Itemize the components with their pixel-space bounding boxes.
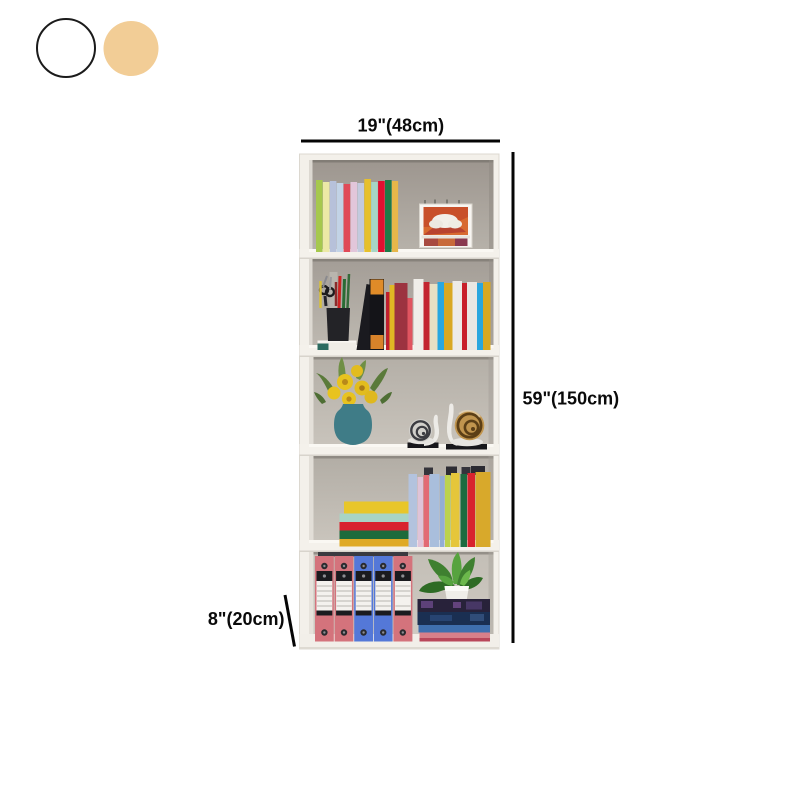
svg-text:8"(20cm): 8"(20cm) (208, 609, 285, 629)
svg-text:19"(48cm): 19"(48cm) (358, 116, 445, 136)
svg-text:59"(150cm): 59"(150cm) (523, 389, 620, 409)
